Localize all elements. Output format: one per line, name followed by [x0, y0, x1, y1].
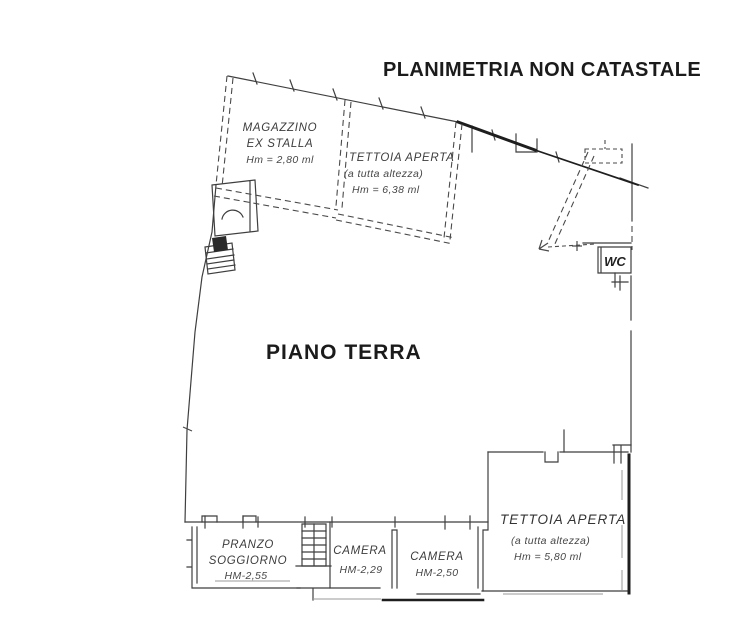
camera1-name: CAMERA: [333, 545, 386, 557]
magazzino-height: Hm = 2,80 ml: [246, 154, 314, 166]
tettoia-top-name: TETTOIA APERTA: [349, 152, 454, 164]
camera1-height: HM-2,29: [339, 564, 382, 576]
room-magazzino-label: MAGAZZINO EX STALLA Hm = 2,80 ml: [243, 122, 318, 166]
tettoia-bottom-height: Hm = 5,80 ml: [514, 551, 582, 563]
pranzo-name-line1: PRANZO: [222, 539, 274, 551]
magazzino-name-line1: MAGAZZINO: [243, 122, 318, 134]
camera2-name: CAMERA: [410, 551, 463, 563]
magazzino-name-line2: EX STALLA: [247, 138, 314, 150]
pranzo-name-line2: SOGGIORNO: [209, 555, 288, 567]
room-tettoia-top-label: TETTOIA APERTA (a tutta altezza) Hm = 6,…: [344, 152, 454, 196]
tettoia-bottom-name: TETTOIA APERTA: [500, 512, 626, 527]
room-camera1-label: CAMERA HM-2,29: [333, 545, 386, 576]
room-tettoia-bottom-label: TETTOIA APERTA (a tutta altezza) Hm = 5,…: [500, 512, 626, 563]
tettoia-top-height: Hm = 6,38 ml: [352, 184, 420, 196]
room-pranzo-label: PRANZO SOGGIORNO HM-2,55: [209, 539, 288, 582]
camera2-height: HM-2,50: [415, 567, 458, 579]
floor-plan-page: PLANIMETRIA NON CATASTALE PIANO TERRA MA…: [0, 0, 744, 643]
room-camera2-label: CAMERA HM-2,50: [410, 551, 463, 579]
tettoia-top-note: (a tutta altezza): [344, 168, 423, 180]
stair-landing-fill: [212, 236, 228, 252]
plan-title: PLANIMETRIA NON CATASTALE: [383, 59, 701, 81]
plan-marks: [183, 240, 582, 431]
room-wc-label: WC: [604, 254, 626, 269]
tettoia-bottom-note: (a tutta altezza): [511, 535, 590, 547]
floor-plan: PLANIMETRIA NON CATASTALE PIANO TERRA MA…: [0, 0, 744, 643]
pranzo-height: HM-2,55: [224, 570, 267, 582]
floor-label: PIANO TERRA: [266, 341, 422, 364]
